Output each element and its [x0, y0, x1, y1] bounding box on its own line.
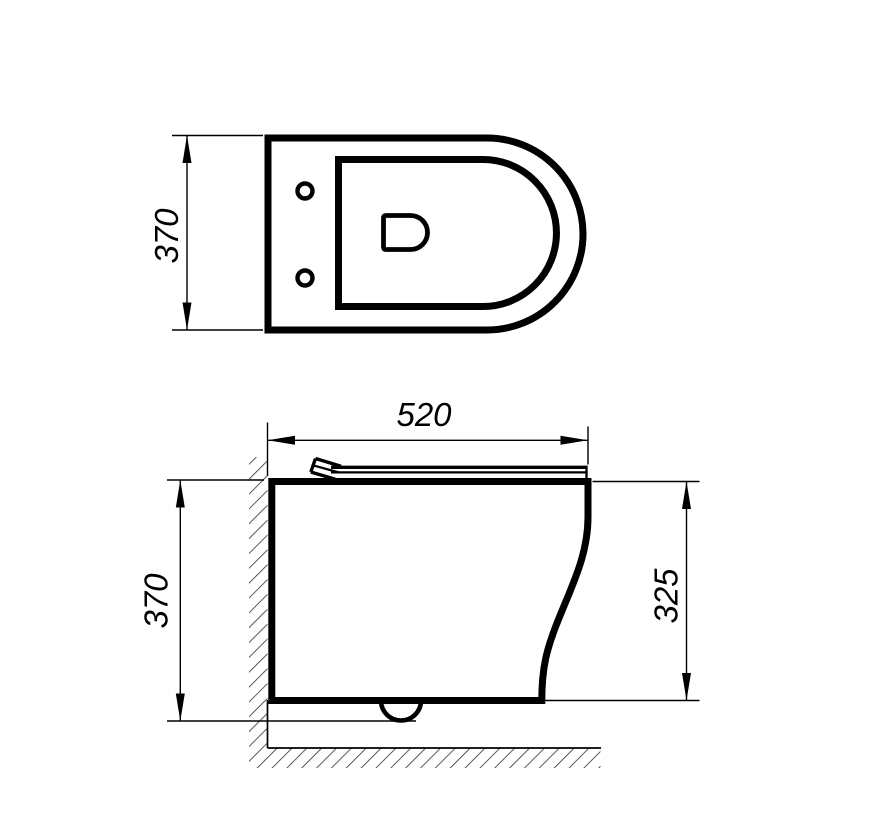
- top-view-mount-hole-lower: [298, 271, 313, 286]
- dim-label-height-rim: 325: [648, 568, 685, 624]
- floor-hatching: [268, 749, 601, 769]
- top-view-mount-hole-upper: [298, 184, 313, 199]
- top-view-seat-outline: [339, 160, 557, 307]
- drawing-canvas: 370 520: [0, 0, 874, 835]
- dim-label-top-width: 370: [148, 208, 185, 264]
- toilet-technical-drawing: 370 520: [0, 0, 874, 835]
- top-view-flush-opening: [384, 216, 428, 250]
- dim-label-height-overall: 370: [138, 573, 175, 629]
- side-view-body-outline: [272, 482, 588, 701]
- dim-label-depth: 520: [396, 396, 452, 433]
